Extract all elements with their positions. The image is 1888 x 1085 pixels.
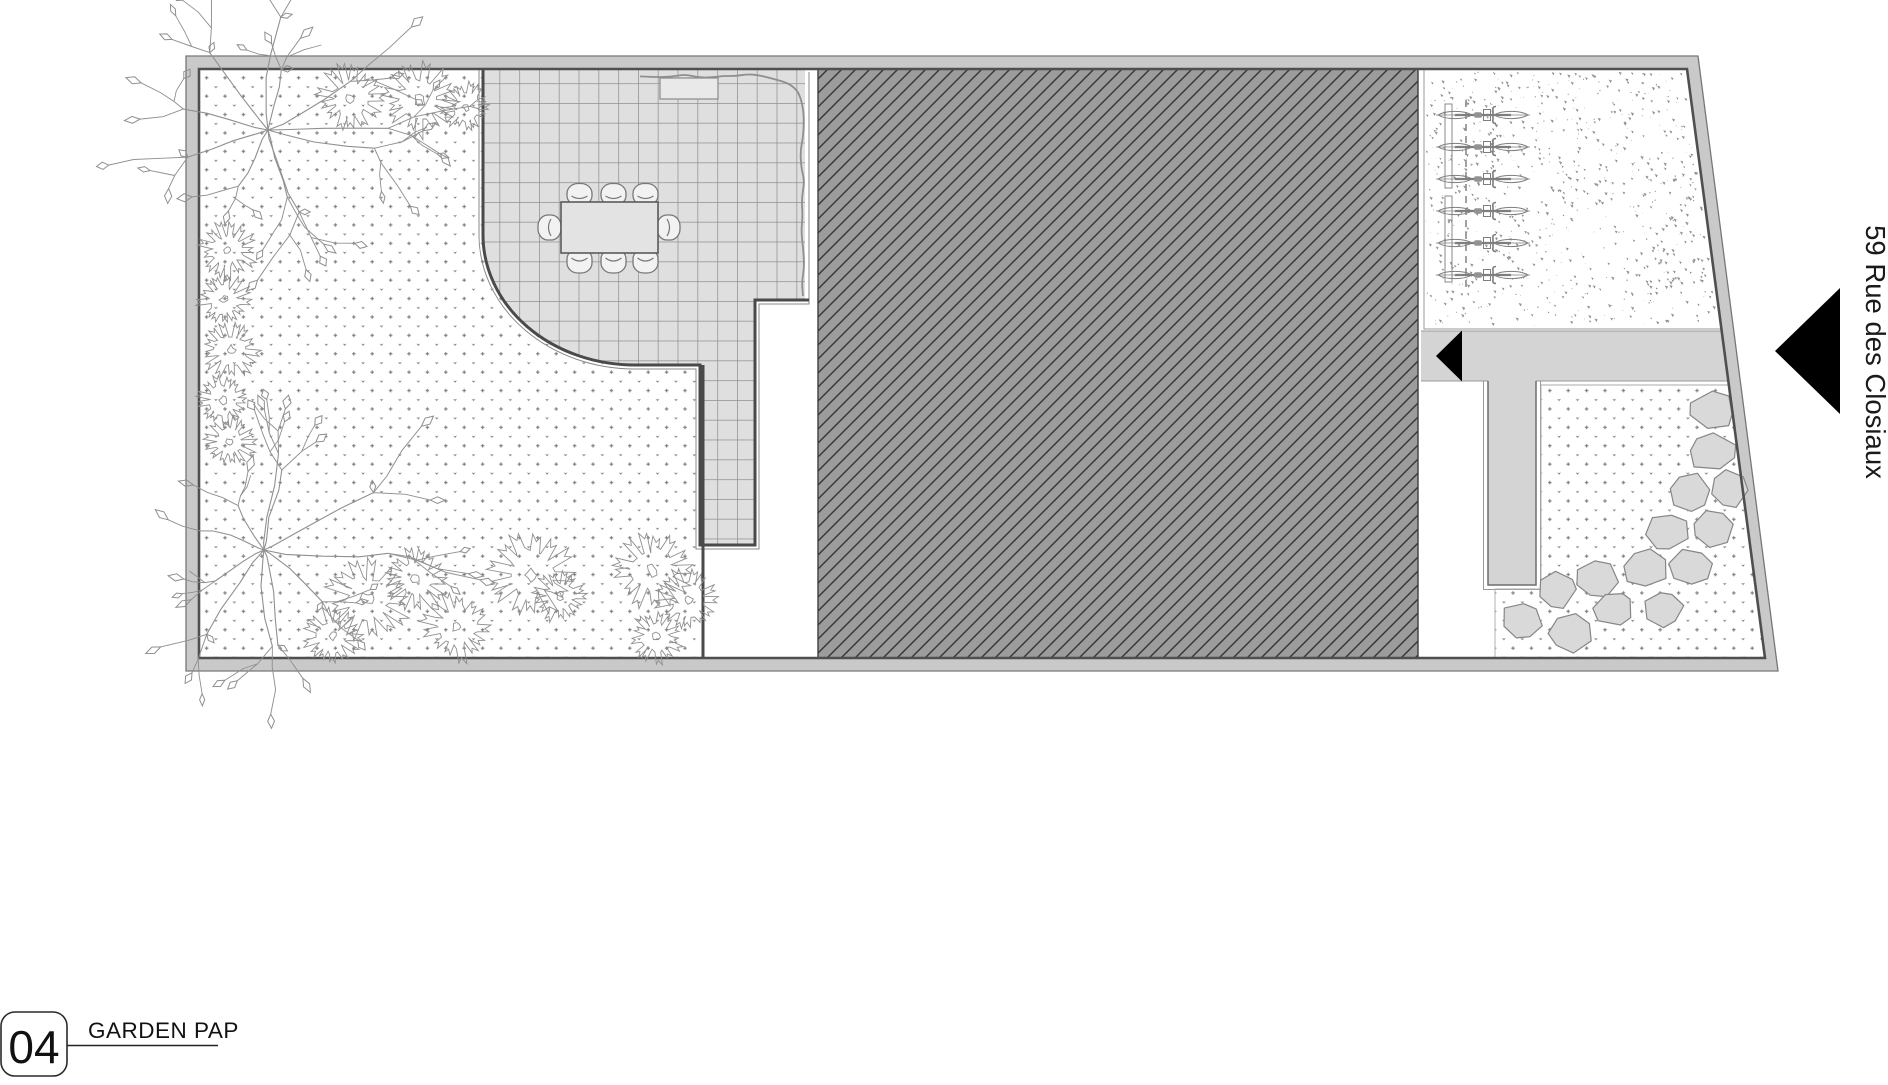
svg-text:04: 04 <box>8 1021 59 1073</box>
svg-text:59 Rue des Closiaux: 59 Rue des Closiaux <box>1860 225 1888 479</box>
svg-text:GARDEN PAP: GARDEN PAP <box>88 1018 239 1043</box>
